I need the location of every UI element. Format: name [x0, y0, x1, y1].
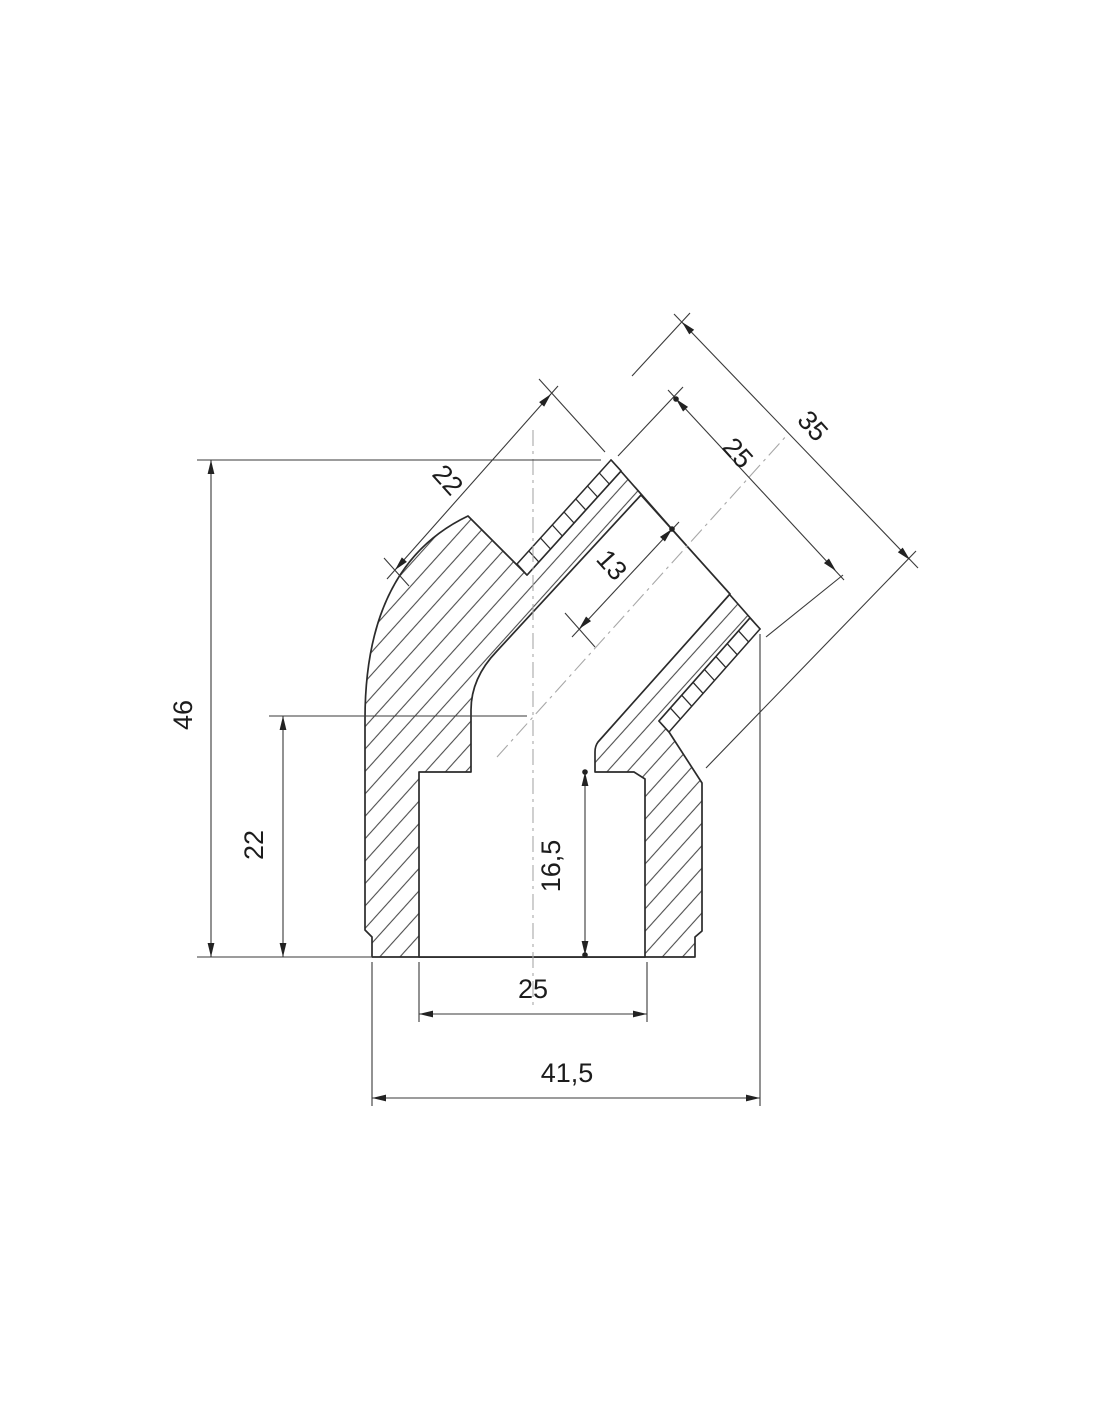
dim-label-socket-depth: 16,5	[536, 840, 566, 893]
dim-label-overall-width: 41,5	[541, 1058, 594, 1088]
dim-label-overall-height: 46	[168, 700, 198, 730]
dim-label-socket-inner-width: 25	[518, 974, 548, 1004]
dim-label-socket-height: 22	[239, 830, 269, 860]
technical-drawing-page: 46 22 16,5 25	[0, 0, 1100, 1422]
technical-drawing-canvas: 46 22 16,5 25	[0, 0, 1100, 1422]
